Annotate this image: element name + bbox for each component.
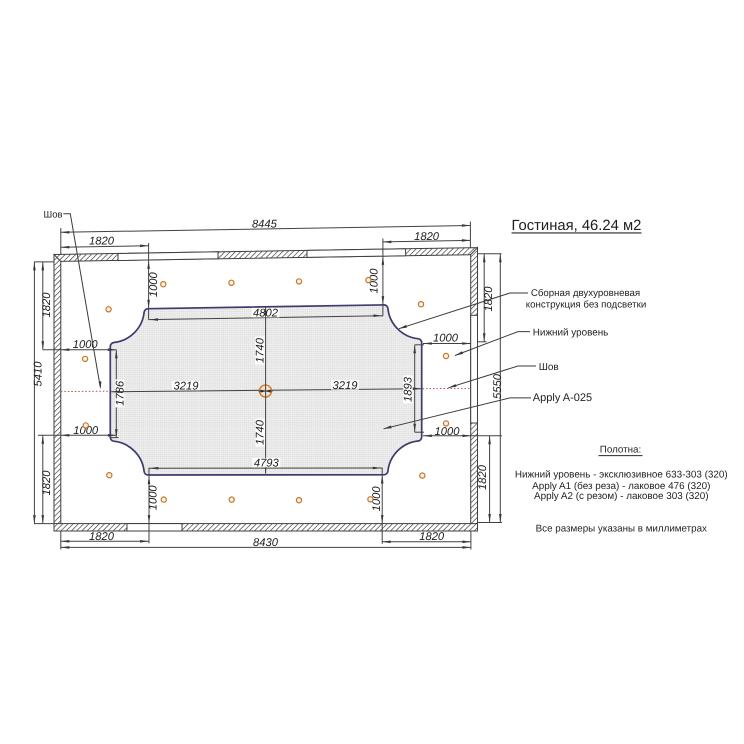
svg-text:1740: 1740 [255, 337, 267, 363]
svg-text:1820: 1820 [477, 464, 489, 490]
svg-text:Шов: Шов [44, 209, 63, 220]
svg-text:Нижний уровень: Нижний уровень [533, 327, 609, 338]
svg-text:Шов: Шов [539, 362, 559, 373]
svg-text:8430: 8430 [253, 537, 279, 549]
svg-text:1820: 1820 [414, 231, 440, 243]
svg-text:3219: 3219 [333, 380, 358, 392]
svg-text:Гостиная, 46.24 м2: Гостиная, 46.24 м2 [512, 218, 642, 234]
svg-text:1820: 1820 [89, 531, 115, 543]
svg-text:1000: 1000 [435, 426, 461, 438]
svg-text:1000: 1000 [73, 339, 99, 351]
svg-text:4793: 4793 [254, 458, 280, 470]
svg-text:5550: 5550 [492, 373, 504, 399]
svg-text:1820: 1820 [41, 470, 53, 496]
svg-text:1740: 1740 [255, 419, 267, 445]
svg-text:1000: 1000 [433, 333, 459, 345]
svg-text:5410: 5410 [33, 361, 45, 387]
svg-text:1786: 1786 [114, 380, 126, 406]
svg-text:1820: 1820 [419, 531, 445, 543]
svg-text:3219: 3219 [174, 381, 199, 393]
svg-text:1820: 1820 [89, 236, 115, 248]
svg-text:1000: 1000 [147, 485, 159, 511]
svg-text:Apply A2 (с резом) - лаковое 3: Apply A2 (с резом) - лаковое 303 (320) [534, 491, 709, 502]
svg-text:Полотна:: Полотна: [600, 445, 641, 456]
svg-text:Нижний уровень - эксклюзивное: Нижний уровень - эксклюзивное 633-303 (3… [515, 469, 728, 480]
svg-text:1893: 1893 [403, 376, 415, 402]
svg-text:1820: 1820 [41, 292, 53, 318]
svg-text:конструкция без подсветки: конструкция без подсветки [526, 300, 646, 311]
svg-text:Все размеры указаны в миллимет: Все размеры указаны в миллиметрах [536, 523, 707, 534]
svg-text:1000: 1000 [148, 271, 160, 297]
svg-text:Сборная двухуровневая: Сборная двухуровневая [531, 288, 640, 299]
svg-text:Apply A-025: Apply A-025 [533, 392, 592, 404]
svg-text:8445: 8445 [252, 218, 278, 230]
